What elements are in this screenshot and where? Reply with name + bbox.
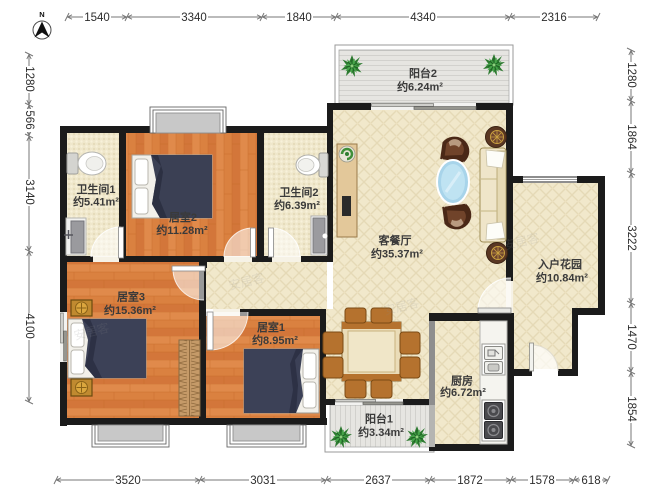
- svg-text:3031: 3031: [250, 475, 276, 487]
- svg-text:约6.24m²: 约6.24m²: [397, 80, 443, 94]
- svg-text:3222: 3222: [625, 225, 637, 251]
- svg-text:3340: 3340: [181, 12, 207, 24]
- svg-text:居室1: 居室1: [257, 320, 285, 334]
- svg-text:N: N: [39, 10, 44, 19]
- svg-text:卫生间2: 卫生间2: [279, 185, 318, 199]
- svg-text:入户花园: 入户花园: [538, 257, 582, 271]
- svg-text:约6.72m²: 约6.72m²: [440, 385, 486, 399]
- svg-text:阳台1: 阳台1: [365, 412, 393, 426]
- svg-text:约3.34m²: 约3.34m²: [358, 425, 404, 439]
- svg-text:居室2: 居室2: [169, 210, 197, 224]
- svg-text:2316: 2316: [541, 12, 567, 24]
- svg-text:3520: 3520: [115, 475, 141, 487]
- svg-text:1280: 1280: [23, 66, 35, 92]
- svg-text:3140: 3140: [23, 179, 35, 205]
- svg-text:2637: 2637: [365, 475, 391, 487]
- svg-text:1578: 1578: [529, 475, 555, 487]
- svg-text:约15.36m²: 约15.36m²: [104, 303, 156, 317]
- svg-text:1864: 1864: [625, 124, 637, 150]
- svg-text:1872: 1872: [457, 475, 483, 487]
- svg-text:1540: 1540: [84, 12, 110, 24]
- svg-text:1280: 1280: [625, 62, 637, 88]
- svg-text:阳台2: 阳台2: [409, 66, 437, 80]
- svg-text:566: 566: [23, 110, 35, 129]
- svg-text:约35.37m²: 约35.37m²: [371, 247, 423, 261]
- svg-text:约10.84m²: 约10.84m²: [536, 271, 588, 285]
- svg-text:1470: 1470: [625, 324, 637, 350]
- svg-text:1840: 1840: [286, 12, 312, 24]
- svg-text:居室3: 居室3: [117, 290, 145, 304]
- svg-text:618: 618: [581, 475, 600, 487]
- svg-text:厨房: 厨房: [451, 374, 473, 388]
- svg-text:约6.39m²: 约6.39m²: [274, 198, 320, 212]
- svg-text:约8.95m²: 约8.95m²: [252, 333, 298, 347]
- svg-text:4100: 4100: [23, 313, 35, 339]
- svg-text:4340: 4340: [410, 12, 436, 24]
- svg-text:客餐厅: 客餐厅: [378, 233, 412, 247]
- svg-text:1854: 1854: [625, 396, 637, 422]
- svg-text:约11.28m²: 约11.28m²: [156, 223, 208, 237]
- svg-text:卫生间1: 卫生间1: [76, 182, 115, 196]
- svg-text:约5.41m²: 约5.41m²: [73, 195, 119, 209]
